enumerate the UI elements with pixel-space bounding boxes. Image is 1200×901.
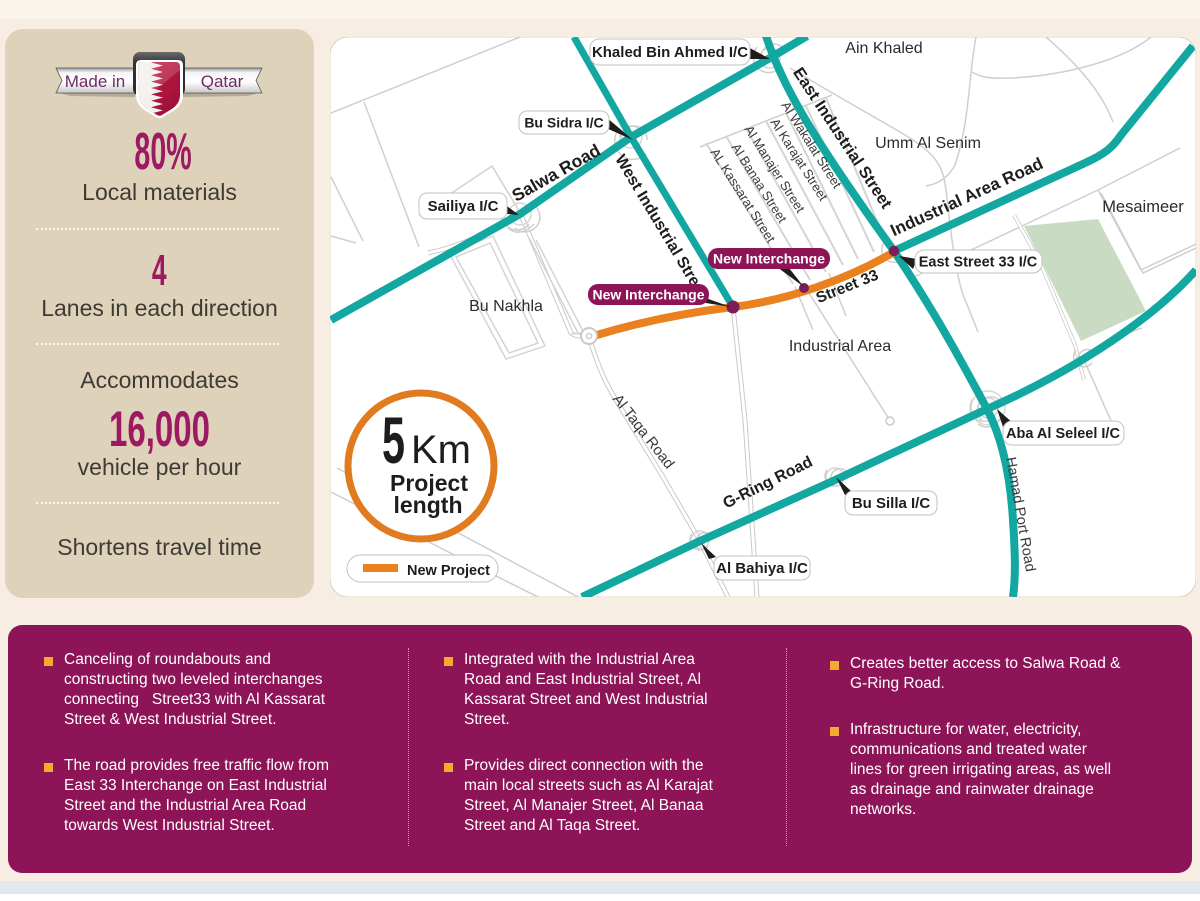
svg-text:Mesaimeer: Mesaimeer [1102,198,1184,216]
svg-text:5: 5 [382,403,405,477]
svg-text:New Project: New Project [407,563,490,579]
svg-text:Bu Sidra I/C: Bu Sidra I/C [524,115,603,131]
svg-text:Khaled Bin Ahmed I/C: Khaled Bin Ahmed I/C [592,44,748,61]
svg-text:Bu Nakhla: Bu Nakhla [469,298,543,315]
svg-text:Aba Al Seleel I/C: Aba Al Seleel I/C [1006,426,1120,442]
svg-text:Al Bahiya I/C: Al Bahiya I/C [716,560,808,577]
svg-text:Qatar: Qatar [201,72,244,91]
svg-text:Industrial Area: Industrial Area [789,338,891,355]
svg-text:New Interchange: New Interchange [713,251,825,267]
svg-text:Ain Khaled: Ain Khaled [845,40,922,57]
svg-text:Km: Km [411,428,471,472]
svg-text:Made in: Made in [65,72,125,91]
svg-text:Bu Silla I/C: Bu Silla I/C [852,495,931,512]
svg-text:length: length [394,492,463,518]
svg-text:New Interchange: New Interchange [592,287,704,303]
svg-text:Umm Al Senim: Umm Al Senim [875,135,981,152]
svg-text:East Street 33 I/C: East Street 33 I/C [919,255,1038,271]
svg-text:Sailiya I/C: Sailiya I/C [428,198,499,215]
